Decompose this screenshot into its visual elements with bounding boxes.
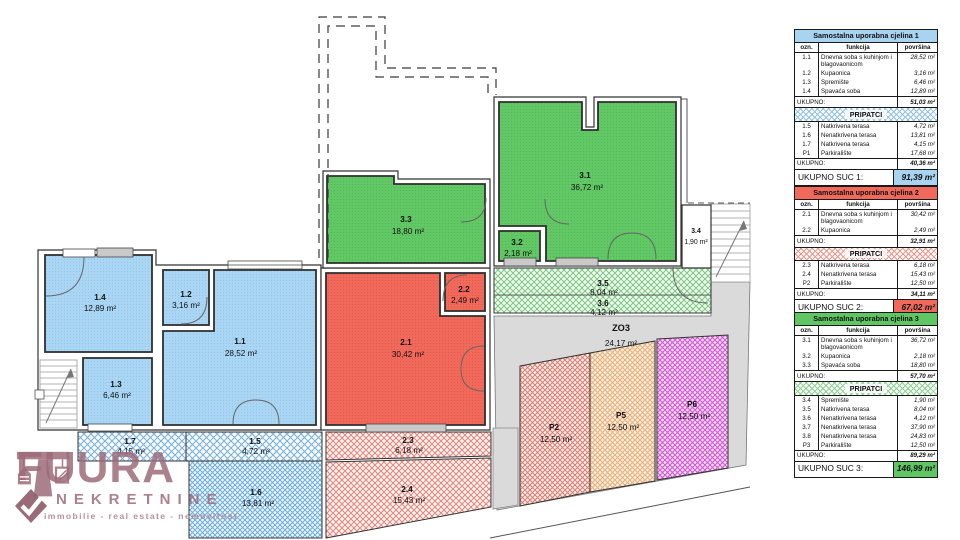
cell-ozn: 1.3 [795,78,819,87]
zo3-code: ZO3 [612,323,630,333]
room-2-1-area: 30,42 m² [392,350,425,359]
room-2-2-code: 2.2 [458,285,470,294]
cell-povrsina: 6,18 m² [897,261,937,270]
ukupno-label: UKUPNO: [795,289,897,299]
cell-ozn: 3.8 [795,432,819,441]
ukupno-label: UKUPNO: [795,97,897,107]
logo-check-house-icon [12,484,50,526]
cell-ozn: 3.7 [795,423,819,432]
zo3-area: 24,17 m² [605,339,638,348]
cell-ozn: 1.1 [795,53,819,69]
table-suc-3-subtotal: UKUPNO: 57,70 m² [795,371,937,382]
window-below-3-1 [556,258,598,266]
table-suc-3-pripatci-band: PRIPATCI [795,382,937,396]
cell-povrsina: 4,72 m² [897,122,937,131]
cell-funkcija: Nenatkrivena terasa [819,423,897,432]
cell-ozn: 2.3 [795,261,819,270]
gray-path-strip [493,428,518,509]
cell-povrsina: 3,16 m² [897,70,937,79]
left-staircase [35,360,77,428]
cell-funkcija: Nenatkrivena terasa [819,131,897,140]
cell-funkcija: Dnevna soba s kuhinjom i blagovaonicom [819,210,897,226]
room-3-1-code: 3.1 [579,171,591,180]
room-1-4-code: 1.4 [94,293,106,302]
room-1-4-area: 12,89 m² [84,304,117,313]
futura-logo: FU URA NEKRETNINE immobilie - real estat… [16,448,266,521]
cell-funkcija: Kupaonica [819,353,897,362]
parking-p5-area: 12,50 m² [607,423,640,432]
parking-p6-area: 12,50 m² [678,412,711,421]
table-suc-3-headers: ozn. funkcija površina [795,326,937,336]
col-header-funkcija: funkcija [819,326,897,335]
cell-ozn: 2.4 [795,270,819,279]
storage-3-4-code: 3.4 [691,228,701,235]
ukupno-value: 57,70 m² [897,371,937,381]
cell-povrsina: 2,18 m² [897,353,937,362]
table-suc-3-pripatci-subtotal: UKUPNO: 89,29 m² [795,451,937,462]
cell-povrsina: 4,15 m² [897,140,937,149]
terrace-1-5-code: 1.5 [249,437,261,446]
cell-povrsina: 17,68 m² [897,149,937,158]
cell-ozn: 1.4 [795,87,819,96]
cell-ozn: P2 [795,279,819,288]
floor-plan-page: 1.4 12,89 m² 1.2 3,16 m² 1.1 28,52 m² 1.… [0,0,960,540]
ukupno-value: 32,91 m² [897,236,937,246]
storage-3-4-area: 1,90 m² [684,239,708,246]
cell-funkcija: Spavaća soba [819,361,897,370]
cell-ozn: 2.1 [795,210,819,226]
cell-ozn: 1.6 [795,131,819,140]
cell-ozn: 1.5 [795,122,819,131]
table-suc-2: Samostalna uporabna cjelina 2 ozn. funkc… [794,186,938,316]
cell-povrsina: 28,52 m² [897,53,937,69]
cell-povrsina: 13,81 m² [897,131,937,140]
ukupno-value: 89,29 m² [897,451,937,461]
terrace-3-5-area: 8,04 m² [590,288,618,297]
window-below-2-1 [366,424,446,432]
grand-total-value: 91,39 m² [893,170,937,185]
ukupno-value: 34,11 m² [897,289,937,299]
ukupno-value: 40,36 m² [897,159,937,169]
cell-ozn: P3 [795,441,819,450]
cell-ozn: 3.6 [795,414,819,423]
cell-ozn: 1.2 [795,70,819,79]
table-suc-2-subtotal: UKUPNO: 32,91 m² [795,236,937,247]
pripatci-label: PRIPATCI [845,384,887,393]
cell-funkcija: Nenatkrivena terasa [819,270,897,279]
pendant-house-icon [18,467,31,485]
table-suc-1-grand-total: UKUPNO SUC 1: 91,39 m² [795,170,937,185]
table-suc-3-main-rows: 3.1 Dnevna soba s kuhinjom i blagovaonic… [795,336,937,371]
parking-p2-code: P2 [549,423,559,432]
room-3-2-area: 2,18 m² [504,249,532,258]
table-suc-3: Samostalna uporabna cjelina 3 ozn. funkc… [794,312,938,478]
terrace-3-6-area: 4,12 m² [590,308,618,317]
col-header-funkcija: funkcija [819,200,897,209]
terrace-3-6-code: 3.6 [597,299,609,308]
parking-p2-area: 12,50 m² [540,435,573,444]
table-suc-1: Samostalna uporabna cjelina 1 ozn. funkc… [794,29,938,186]
col-header-povrsina: površina [897,326,937,335]
room-3-3-area: 18,80 m² [392,227,425,236]
terrace-2-3-area: 6,18 m² [395,446,423,455]
logo-brand-post: URA [77,448,175,488]
window-above-1-4-a [63,249,95,257]
table-suc-1-main-rows: 1.1 Dnevna soba s kuhinjom i blagovaonic… [795,53,937,97]
table-suc-3-title: Samostalna uporabna cjelina 3 [795,313,937,326]
cell-ozn: 3.3 [795,361,819,370]
ukupno-label: UKUPNO: [795,451,897,461]
table-suc-2-main-rows: 2.1 Dnevna soba s kuhinjom i blagovaonic… [795,210,937,236]
logo-subtitle: NEKRETNINE [56,491,266,508]
col-header-povrsina: površina [897,200,937,209]
room-3-1-area: 36,72 m² [571,183,604,192]
grand-total-label: UKUPNO SUC 1: [795,170,893,185]
cell-povrsina: 2,49 m² [897,227,937,236]
parking-p5-code: P5 [616,411,626,420]
room-1-3-code: 1.3 [110,380,122,389]
cell-povrsina: 6,46 m² [897,78,937,87]
cell-funkcija: Natkrivena terasa [819,122,897,131]
room-1-1-area: 28,52 m² [225,349,258,358]
cell-funkcija: Nenatkrivena terasa [819,414,897,423]
cell-ozn: 2.2 [795,227,819,236]
col-header-ozn: ozn. [795,43,819,52]
cell-ozn: 3.2 [795,353,819,362]
cell-funkcija: Nenatkrivena terasa [819,432,897,441]
room-1-1-code: 1.1 [234,337,246,346]
grand-total-label: UKUPNO SUC 3: [795,462,893,477]
cell-povrsina: 37,90 m² [897,423,937,432]
cell-povrsina: 12,50 m² [897,279,937,288]
cell-povrsina: 4,12 m² [897,414,937,423]
cell-funkcija: Spremište [819,78,897,87]
col-header-povrsina: površina [897,43,937,52]
cell-funkcija: Parkiralište [819,279,897,288]
col-header-ozn: ozn. [795,326,819,335]
cell-povrsina: 12,50 m² [897,441,937,450]
table-suc-1-title: Samostalna uporabna cjelina 1 [795,30,937,43]
pripatci-label: PRIPATCI [845,110,887,119]
table-suc-2-title: Samostalna uporabna cjelina 2 [795,187,937,200]
cell-povrsina: 12,89 m² [897,87,937,96]
outline-shaft-3-4 [682,205,711,268]
east-facade-line [681,99,687,203]
table-suc-1-headers: ozn. funkcija površina [795,43,937,53]
cell-povrsina: 36,72 m² [897,336,937,352]
window-below-1-3 [88,424,132,431]
cell-ozn: 1.7 [795,140,819,149]
table-suc-2-pripatci-rows: 2.3 Natkrivena terasa 6,18 m² 2.4 Nenatk… [795,261,937,289]
pripatci-label: PRIPATCI [845,249,887,258]
ukupno-label: UKUPNO: [795,159,897,169]
cell-povrsina: 30,42 m² [897,210,937,226]
terrace-2-4-code: 2.4 [401,485,413,494]
ukupno-label: UKUPNO: [795,236,897,246]
window-above-1-4-b [97,248,133,257]
terrace-2-3-code: 2.3 [402,436,414,445]
cell-funkcija: Parkiralište [819,149,897,158]
room-1-2-code: 1.2 [180,290,192,299]
table-suc-2-headers: ozn. funkcija površina [795,200,937,210]
room-1-3-area: 6,46 m² [103,391,131,400]
terrace-3-5-code: 3.5 [597,279,609,288]
table-suc-1-subtotal: UKUPNO: 51,03 m² [795,97,937,108]
cell-povrsina: 1,90 m² [897,396,937,405]
logo-brand: FU URA [16,448,266,488]
cell-ozn: 3.5 [795,405,819,414]
cell-funkcija: Natkrivena terasa [819,140,897,149]
cell-funkcija: Parkiralište [819,441,897,450]
room-3-3-code: 3.3 [400,215,412,224]
cell-funkcija: Spavaća soba [819,87,897,96]
logo-tagline: immobilie - real estate - nemovitost [44,511,266,521]
cell-povrsina: 24,83 m² [897,432,937,441]
cell-povrsina: 8,04 m² [897,405,937,414]
cell-funkcija: Natkrivena terasa [819,405,897,414]
table-suc-3-pripatci-rows: 3.4 Spremište 1,90 m² 3.5 Natkrivena ter… [795,396,937,450]
t-crossbar [17,452,69,459]
parking-p6-code: P6 [687,400,697,409]
window-below-3-2 [504,258,536,266]
table-suc-2-pripatci-band: PRIPATCI [795,248,937,262]
room-2-2-area: 2,49 m² [451,296,479,305]
cell-povrsina: 15,43 m² [897,270,937,279]
table-suc-1-pripatci-band: PRIPATCI [795,108,937,122]
cell-funkcija: Kupaonica [819,70,897,79]
col-header-funkcija: funkcija [819,43,897,52]
cell-ozn: P1 [795,149,819,158]
ukupno-label: UKUPNO: [795,371,897,381]
cell-povrsina: 18,80 m² [897,361,937,370]
cell-funkcija: Dnevna soba s kuhinjom i blagovaonicom [819,53,897,69]
table-suc-1-pripatci-rows: 1.5 Natkrivena terasa 4,72 m² 1.6 Nenatk… [795,122,937,159]
room-3-2-code: 3.2 [511,238,523,247]
cell-funkcija: Dnevna soba s kuhinjom i blagovaonicom [819,336,897,352]
table-suc-3-grand-total: UKUPNO SUC 3: 146,99 m² [795,462,937,477]
col-header-ozn: ozn. [795,200,819,209]
ukupno-value: 51,03 m² [897,97,937,107]
grand-total-value: 146,99 m² [893,462,937,477]
room-2-1-code: 2.1 [400,338,412,347]
cell-ozn: 3.4 [795,396,819,405]
cell-funkcija: Spremište [819,396,897,405]
table-suc-1-pripatci-subtotal: UKUPNO: 40,36 m² [795,159,937,170]
stair-landing-post [35,390,44,399]
cell-funkcija: Kupaonica [819,227,897,236]
cell-funkcija: Natkrivena terasa [819,261,897,270]
table-suc-2-pripatci-subtotal: UKUPNO: 34,11 m² [795,289,937,300]
room-1-2-area: 3,16 m² [172,301,200,310]
terrace-2-4-area: 15,43 m² [393,496,426,505]
right-staircase [711,204,750,282]
cell-ozn: 3.1 [795,336,819,352]
